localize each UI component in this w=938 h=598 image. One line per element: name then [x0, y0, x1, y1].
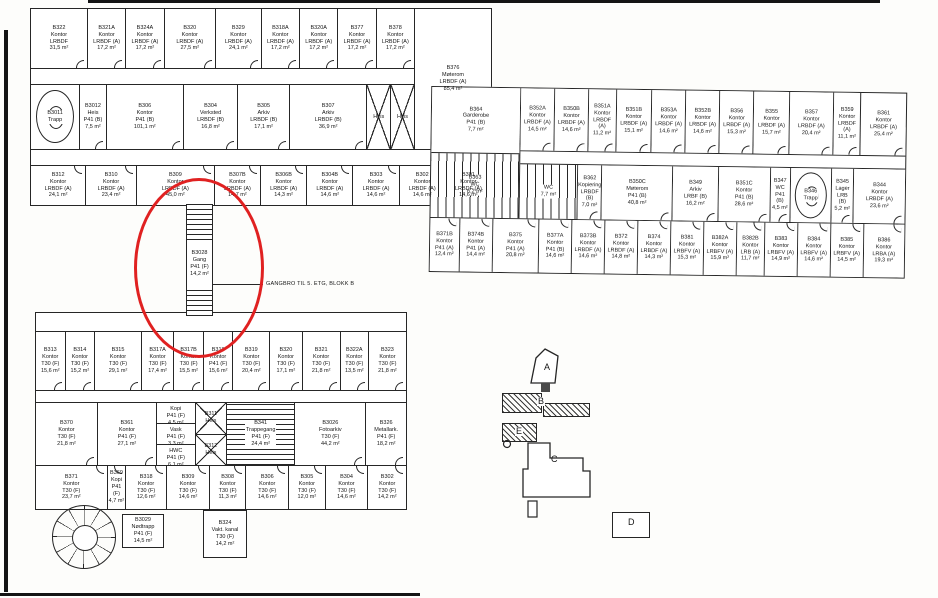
corridor	[31, 149, 491, 166]
bottom-wing-row3: B371KontorT30 (F)23,7 m²B369KopiP41 (F)4…	[36, 466, 406, 509]
room-label: B386KontorLRBA (A)19,3 m²	[871, 237, 896, 265]
room-b372: B372KontorLRBDF (A)14,8 m²	[605, 220, 639, 273]
room-b3012: B3012HeisP41 (B)7,5 m²	[80, 85, 106, 149]
room-b318a: B318AKontorLRBDF (A)17,2 m²	[262, 9, 300, 68]
room-label: B317BKontorT30 (F)15,5 m²	[178, 347, 199, 375]
room-label: B313KontorT30 (F)15,6 m²	[40, 347, 61, 375]
room-b382b: B382BKontorLRB (A)11,7 m²	[736, 222, 765, 275]
top-wing-row2: B3011TrappB3012HeisP41 (B)7,5 m²B306Kont…	[31, 85, 414, 149]
room-label: B382AKontorLRBFV (A)15,9 m²	[705, 235, 734, 263]
room-label: WC7,7 m²	[540, 185, 558, 199]
room-b329: B329KontorLRBDF (A)24,1 m²	[216, 9, 262, 68]
room-label: B349ArkivLRBF (B)16,2 m²	[683, 180, 708, 208]
lift: Heis	[367, 85, 391, 149]
keyplan-label-c: C	[550, 455, 559, 464]
room-label: B361KontorP41 (F)27,1 m²	[117, 420, 138, 448]
corridor	[31, 68, 414, 85]
top-wing-row1: B322KontorLRBDF31,5 m²B321AKontorLRBDF (…	[31, 9, 414, 68]
right-wing-junction: B364GarderobeP41 (B)7,7 m²B363WC6,2 m²	[430, 87, 521, 218]
frame-line-bottom	[0, 593, 420, 596]
room-label: B375KontorP41 (A)20,8 m²	[505, 232, 526, 260]
room-b370: B370KontorT30 (F)21,8 m²	[36, 403, 98, 465]
connector-use: Gang	[188, 257, 211, 264]
room-b323: B323KontorT30 (F)21,8 m²	[369, 332, 406, 390]
room-b373b: B373BKontorLRBDF (A)14,6 m²	[572, 220, 606, 273]
round-stair-b3011: B3011Trapp	[31, 85, 80, 149]
room-label: B309KontorLRBDF (A)45,0 m²	[161, 172, 190, 200]
room-b378: B378KontorLRBDF (A)17,2 m²	[377, 9, 414, 68]
room-b350c: B350CMøteromP41 (B)40,8 m²	[602, 165, 674, 220]
room-b371b: B371BKontorP41 (A)12,4 m²	[430, 218, 460, 271]
room-b320: B320KontorLRBDF (A)27,5 m²	[165, 9, 216, 68]
keyplan-block-b-right	[543, 403, 590, 417]
room-b305: B305ArkivLRBDF (B)17,1 m²	[238, 85, 290, 149]
keyplan-stub	[528, 501, 537, 517]
room-label: B381KontorLRBFV (A)15,3 m²	[672, 234, 701, 262]
lift: Heis	[391, 85, 414, 149]
room-b377: B377KontorLRBDF (A)17,2 m²	[338, 9, 376, 68]
room-b344: B344KontorLRBDF (A)23,6 m²	[854, 169, 906, 224]
right-wing-row1: B352AKontorLRBDF (A)14,5 m²B350BKontorLR…	[520, 88, 906, 156]
room-b322a: B322AKontorT30 (F)13,5 m²	[341, 332, 369, 390]
room-label: B383KontorLRBFV (A)14,9 m²	[766, 235, 795, 263]
floor-plan-scan: B322KontorLRBDF31,5 m²B321AKontorLRBDF (…	[0, 0, 938, 598]
room-b317b: B317BKontorT30 (F)15,5 m²	[174, 332, 204, 390]
room-label: B344KontorLRBDF (A)23,6 m²	[865, 182, 894, 210]
spiral-stair	[52, 505, 116, 569]
room-label: Heis	[372, 114, 385, 121]
room-label: B305ArkivLRBDF (B)17,1 m²	[249, 103, 278, 131]
room-label: B312Heis	[204, 443, 219, 457]
room-label: B356KontorLRBDF (A)15,3 m²	[722, 108, 751, 136]
room-b350b: B350BKontorLRBDF (A)14,6 m²	[554, 89, 589, 151]
room-b382a: B382AKontorLRBFV (A)15,9 m²	[704, 222, 738, 275]
room-b324: B324Vakt. kanalT30 (F)14,2 m²	[204, 520, 246, 548]
room-label: B306KontorP41 (B)101,1 m²	[133, 103, 157, 131]
room-label: B377KontorLRBDF (A)17,2 m²	[343, 25, 372, 53]
room-label: B359KontorLRBDF (A)11,1 m²	[834, 106, 861, 141]
room-b325: B325HWCP41 (F)6,1 m²	[157, 445, 195, 465]
room-b306: B306KontorT30 (F)14,6 m²	[246, 466, 289, 509]
room-b374b: B374BKontorP41 (A)14,4 m²	[459, 218, 493, 271]
stack: B328KopiP41 (F)4,5 m²B327VaskP41 (F)3,3 …	[157, 403, 196, 465]
room-b320: B320KontorT30 (F)17,1 m²	[270, 332, 302, 390]
room-b351b: B351BKontorLRBDF (A)15,1 m²	[616, 90, 653, 152]
room-b326: B326Metallark.P41 (F)18,2 m²	[366, 403, 406, 465]
room-label: B307BKontorLRBDF (A)14,7 m²	[223, 172, 252, 200]
room-label: B307ArkivLRBDF (B)36,9 m²	[314, 103, 343, 131]
room-b347: B347WCP41 (B)4,5 m²	[770, 168, 791, 222]
room-b324a: B324AKontorLRBDF (A)17,2 m²	[126, 9, 164, 68]
room-b321a: B321AKontorLRBDF (A)17,2 m²	[88, 9, 126, 68]
room-label: B372KontorLRBDF (A)14,8 m²	[606, 233, 635, 261]
room-label: B312KontorLRBDF (A)24,1 m²	[44, 172, 73, 200]
room-label: B350CMøteromP41 (B)40,8 m²	[625, 179, 649, 207]
connector-area: 14,2 m²	[188, 271, 211, 278]
right-wing-row3: B371BKontorP41 (A)12,4 m²B374BKontorP41 …	[430, 218, 905, 278]
room-label: B351CKontorP41 (B)28,6 m²	[734, 180, 755, 208]
room-label: B319KontorT30 (F)20,4 m²	[241, 347, 262, 375]
room-b361: B361KontorP41 (F)27,1 m²	[98, 403, 157, 465]
room-label: B325HWCP41 (F)6,1 m²	[166, 445, 186, 465]
room-label: B327VaskP41 (F)3,3 m²	[166, 424, 186, 445]
room-b351c: B351CKontorP41 (B)28,6 m²	[718, 167, 771, 222]
bottom-wing: B313KontorT30 (F)15,6 m²B314KontorT30 (F…	[35, 312, 407, 510]
room-label: B378KontorLRBDF (A)17,2 m²	[381, 25, 410, 53]
room-label: B347WCP41 (B)4,5 m²	[770, 178, 790, 213]
keyplan-label-d: D	[627, 518, 636, 527]
stair-h-b341: B341TrappegangP41 (F)24,4 m²	[227, 403, 295, 465]
room-label: B322KontorLRBDF31,5 m²	[49, 25, 70, 53]
room-b317a: B317AKontorT30 (F)17,4 m²	[142, 332, 174, 390]
room-label: B306KontorT30 (F)14,6 m²	[257, 474, 278, 502]
room-label: B374KontorLRBDF (A)14,3 m²	[639, 234, 668, 262]
connector-label: B3028 Gang P41 (F) 14,2 m²	[187, 240, 212, 288]
room-b313: B313KontorT30 (F)15,6 m²	[36, 332, 66, 390]
keyplan-block-b-left	[502, 393, 542, 413]
room-label: B321KontorT30 (F)21,8 m²	[311, 347, 332, 375]
room-b349: B349ArkivLRBF (B)16,2 m²	[673, 166, 719, 221]
frame-line-left	[4, 30, 8, 592]
room-b385: B385KontorLRBFV (A)14,5 m²	[830, 224, 864, 277]
room-label: B341TrappegangP41 (F)24,4 m²	[245, 420, 276, 448]
room-b304b: B304BKontorLRBDF (A)14,6 m²	[307, 166, 353, 205]
frame-line-top	[88, 0, 880, 3]
room-label: B308KontorT30 (F)11,3 m²	[218, 474, 238, 502]
room-label: B353AKontorLRBDF (A)14,6 m²	[654, 107, 683, 135]
connector-corridor: B3028 Gang P41 (F) 14,2 m²	[186, 204, 213, 316]
room-b310: B310KontorLRBDF (A)23,4 m²	[86, 166, 137, 205]
room-b375: B375KontorP41 (A)20,8 m²	[492, 219, 539, 273]
keyplan-link	[541, 383, 550, 392]
stair-flight-icon	[187, 288, 212, 316]
top-wing-row3: B312KontorLRBDF (A)24,1 m²B310KontorLRBD…	[31, 166, 491, 205]
room-label: B320AKontorLRBDF (A)17,2 m²	[304, 25, 333, 53]
room-label: B315KontorT30 (F)29,1 m²	[108, 347, 129, 375]
room-label: B321AKontorLRBDF (A)17,2 m²	[92, 25, 121, 53]
keyplan-label-b: B	[537, 397, 545, 406]
room-label: B311Heis	[204, 411, 218, 425]
room-b315: B315KontorT30 (F)29,1 m²	[95, 332, 142, 390]
room-label: B304BKontorLRBDF (A)14,6 m²	[315, 172, 344, 200]
bottom-wing-row1: B313KontorT30 (F)15,6 m²B314KontorT30 (F…	[36, 332, 406, 391]
room-label: B352BKontorLRBDF (A)14,6 m²	[688, 108, 717, 136]
room-b309: B309KontorLRBDF (A)45,0 m²	[137, 166, 215, 205]
room-b322: B322KontorLRBDF31,5 m²	[31, 9, 88, 68]
room-label: B364GarderobeP41 (B)7,7 m²	[461, 106, 490, 134]
room-b306: B306KontorP41 (B)101,1 m²	[107, 85, 184, 149]
room-label: B324Vakt. kanalT30 (F)14,2 m²	[211, 520, 240, 548]
room-b384: B384KontorLRBFV (A)14,6 m²	[797, 223, 831, 276]
room-label: B361KontorLRBDF (A)25,4 m²	[869, 110, 898, 138]
room-b321: B321KontorT30 (F)21,8 m²	[303, 332, 341, 390]
room-label: B369KopiP41 (F)4,7 m²	[108, 470, 126, 504]
room-label: B320KontorLRBDF (A)27,5 m²	[175, 25, 204, 53]
room-label: B317AKontorT30 (F)17,4 m²	[147, 347, 168, 375]
room-label: B304VerkstedLRBDF (B)16,8 m²	[196, 103, 225, 131]
room-label: B323KontorT30 (F)21,8 m²	[377, 347, 398, 375]
room-label: B371KontorT30 (F)23,7 m²	[61, 474, 82, 502]
room-label: B384KontorLRBFV (A)14,6 m²	[799, 236, 828, 264]
lift-b312: B312Heis	[196, 435, 226, 466]
connector-class: P41 (F)	[188, 264, 211, 271]
room-label: B314KontorT30 (F)15,2 m²	[70, 347, 91, 375]
room-label: B318KontorP41 (F)15,6 m²	[208, 347, 229, 375]
room-b369: B369KopiP41 (F)4,7 m²	[108, 466, 127, 509]
room-b307b: B307BKontorLRBDF (A)14,7 m²	[215, 166, 261, 205]
room-label: B324AKontorLRBDF (A)17,2 m²	[130, 25, 159, 53]
corridor	[36, 391, 406, 403]
stair-flight-icon	[187, 204, 212, 240]
room-b308: B308KontorT30 (F)11,3 m²	[210, 466, 246, 509]
room-label: B373BKontorLRBDF (A)14,6 m²	[573, 233, 602, 261]
callout-leader-line	[213, 284, 263, 285]
room-b306b: B306BKontorLRBDF (A)14,3 m²	[261, 166, 307, 205]
room-label: B302KontorT30 (F)14,2 m²	[377, 474, 398, 502]
room-label: B374BKontorP41 (A)14,4 m²	[465, 231, 486, 259]
room-label: B355KontorLRBDF (A)15,7 m²	[757, 109, 786, 137]
room-label: B309KontorT30 (F)14,6 m²	[178, 474, 199, 502]
bottom-wing-mid: B370KontorT30 (F)21,8 m²B361KontorP41 (F…	[36, 403, 406, 466]
room-label: B370KontorT30 (F)21,8 m²	[56, 420, 77, 448]
room-b381: B381KontorLRBFV (A)15,3 m²	[671, 221, 705, 274]
room-label: B318AKontorLRBDF (A)17,2 m²	[266, 25, 295, 53]
duct-room: B324Vakt. kanalT30 (F)14,2 m²	[203, 510, 247, 558]
angled-b361: B361KontorLRBDF (A)25,4 m²	[861, 93, 906, 156]
room-b364: B364GarderobeP41 (B)7,7 m²	[431, 87, 520, 154]
room-b305: B305KontorT30 (F)12,0 m²	[289, 466, 325, 509]
room-b352a: B352AKontorLRBDF (A)14,5 m²	[520, 88, 555, 150]
room-b362: B362KopieringLRBDF (B)7,0 m²	[578, 165, 603, 219]
room-b359: B359KontorLRBDF (A)11,1 m²	[833, 93, 861, 155]
keyplan-label-a: A	[543, 363, 551, 372]
room-b357: B357KontorLRBDF (A)20,4 m²	[789, 92, 834, 155]
room-label: B320KontorT30 (F)17,1 m²	[276, 347, 297, 375]
room-b3029: B3029NødtrappP41 (F)14,5 m²	[123, 517, 163, 545]
room-label: B351AKontorLRBDF (A)11,2 m²	[589, 103, 616, 138]
room-label: B322AKontorT30 (F)13,5 m²	[344, 347, 365, 375]
room-b304: B304VerkstedLRBDF (B)16,8 m²	[184, 85, 238, 149]
room-label: B382BKontorLRB (A)11,7 m²	[739, 235, 761, 263]
room-b3026: B3026FotoarkivT30 (F)44,2 m²	[295, 403, 366, 465]
keyplan-outline	[495, 345, 685, 595]
room-b356: B356KontorLRBDF (A)15,3 m²	[720, 91, 755, 153]
room-label: Heis	[396, 114, 409, 121]
room-label: B326Metallark.P41 (F)18,2 m²	[373, 420, 399, 448]
wc: WC7,7 m²	[519, 164, 578, 219]
room-b320a: B320AKontorLRBDF (A)17,2 m²	[300, 9, 338, 68]
corridor	[36, 313, 406, 332]
room-label: B350BKontorLRBDF (A)14,6 m²	[557, 106, 586, 134]
room-b371: B371KontorT30 (F)23,7 m²	[36, 466, 108, 509]
room-b327: B327VaskP41 (F)3,3 m²	[157, 424, 195, 445]
top-wing: B322KontorLRBDF31,5 m²B321AKontorLRBDF (…	[30, 8, 492, 206]
keyplan-label-e: E	[515, 427, 523, 436]
room-b352b: B352BKontorLRBDF (A)14,6 m²	[686, 91, 721, 153]
wc-b363: B363WC6,2 m²	[430, 153, 519, 219]
room-label: B363WC6,2 m²	[466, 175, 484, 196]
room-b355: B355KontorLRBDF (A)15,7 m²	[754, 92, 791, 154]
room-b351a: B351AKontorLRBDF (A)11,2 m²	[588, 89, 616, 151]
room-label: B357KontorLRBDF (A)20,4 m²	[797, 109, 826, 137]
room-b307: B307ArkivLRBDF (B)36,9 m²	[290, 85, 367, 149]
connector-id: B3028	[188, 250, 211, 257]
room-b309: B309KontorT30 (F)14,6 m²	[167, 466, 210, 509]
room-b374: B374KontorLRBDF (A)14,3 m²	[638, 221, 672, 274]
round-stair-b346: B346Trapp	[790, 168, 832, 223]
round-stair-icon	[794, 172, 826, 218]
stack: B311HeisB312Heis	[196, 403, 227, 465]
room-label: B329KontorLRBDF (A)24,1 m²	[224, 25, 253, 53]
room-label: B345LagerLRB (B)5,2 m²	[832, 178, 854, 213]
room-label: B310KontorLRBDF (A)23,4 m²	[97, 172, 126, 200]
room-b302: B302KontorT30 (F)14,2 m²	[368, 466, 406, 509]
escape-stair-label: B3029NødtrappP41 (F)14,5 m²	[122, 514, 164, 548]
round-stair-icon	[36, 90, 74, 143]
room-label: B3012HeisP41 (B)7,5 m²	[83, 103, 104, 131]
room-b377a: B377AKontorP41 (B)14,6 m²	[539, 220, 573, 273]
room-label: B3029NødtrappP41 (F)14,5 m²	[131, 517, 156, 545]
right-wing: B364GarderobeP41 (B)7,7 m²B363WC6,2 m² B…	[429, 86, 908, 279]
room-b303: B303KontorLRBDF (A)14,6 m²	[353, 166, 399, 205]
room-b345: B345LagerLRB (B)5,2 m²	[831, 169, 854, 223]
room-b318: B318KontorT30 (F)12,6 m²	[126, 466, 167, 509]
callout-text: GANGBRO TIL 5. ETG, BLOKK B	[266, 281, 354, 287]
right-wing-row2: WC7,7 m²B362KopieringLRBDF (B)7,0 m²B350…	[519, 164, 905, 223]
room-label: B306BKontorLRBDF (A)14,3 m²	[269, 172, 298, 200]
room-label: B352AKontorLRBDF (A)14,5 m²	[523, 106, 552, 134]
room-b318: B318KontorP41 (F)15,6 m²	[204, 332, 234, 390]
room-b304: B304KontorT30 (F)14,6 m²	[326, 466, 369, 509]
room-label: B305KontorT30 (F)12,0 m²	[297, 474, 318, 502]
room-b314: B314KontorT30 (F)15,2 m²	[66, 332, 96, 390]
room-label: B3026FotoarkivT30 (F)44,2 m²	[318, 420, 343, 448]
room-b386: B386KontorLRBA (A)19,3 m²	[863, 224, 904, 278]
room-label: B303KontorLRBDF (A)14,6 m²	[362, 172, 391, 200]
room-b312: B312KontorLRBDF (A)24,1 m²	[31, 166, 86, 205]
room-label: B371BKontorP41 (A)12,4 m²	[434, 231, 455, 259]
lift-b311: B311Heis	[196, 403, 226, 435]
room-label: B385KontorLRBFV (A)14,5 m²	[832, 236, 861, 264]
room-label: B318KontorT30 (F)12,6 m²	[136, 474, 157, 502]
room-label: B328KopiP41 (F)4,5 m²	[166, 403, 186, 424]
room-b353a: B353AKontorLRBDF (A)14,6 m²	[652, 90, 687, 152]
room-b383: B383KontorLRBFV (A)14,9 m²	[764, 223, 798, 276]
room-b328: B328KopiP41 (F)4,5 m²	[157, 403, 195, 424]
room-b319: B319KontorT30 (F)20,4 m²	[233, 332, 270, 390]
room-label: B377AKontorP41 (B)14,6 m²	[545, 232, 566, 260]
room-label: B362KopieringLRBDF (B)7,0 m²	[578, 175, 603, 210]
room-label: B304KontorT30 (F)14,6 m²	[336, 474, 357, 502]
room-label: B351BKontorLRBDF (A)15,1 m²	[619, 107, 648, 135]
keyplan-block-c-shape	[523, 443, 590, 497]
